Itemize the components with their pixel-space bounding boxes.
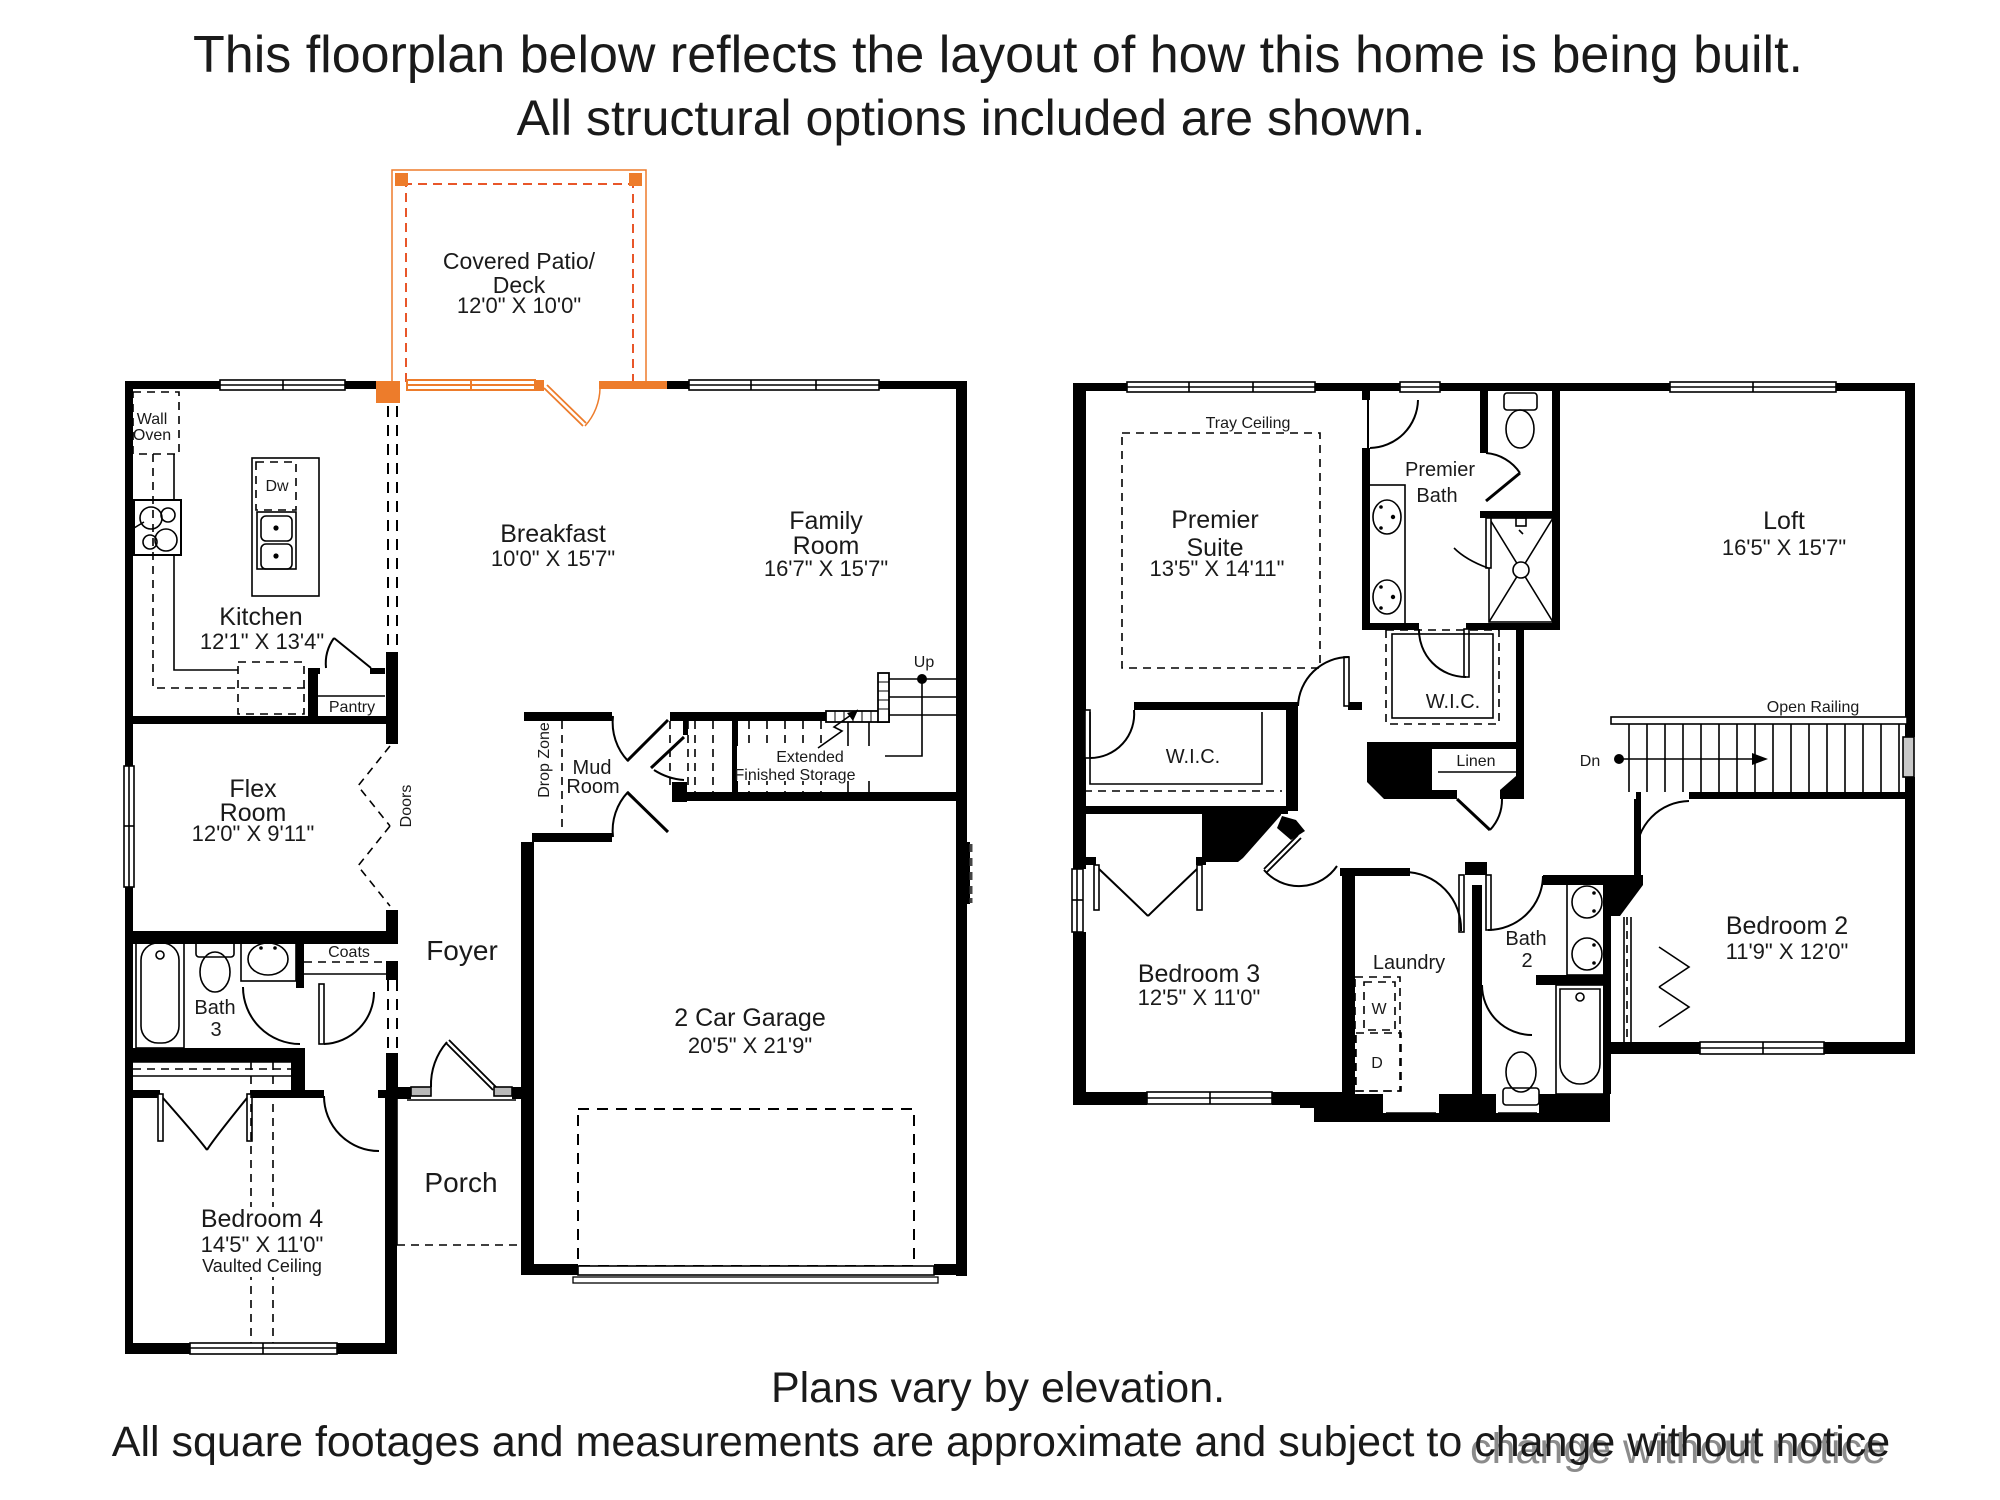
svg-text:16'7" X 15'7": 16'7" X 15'7" [764,556,888,581]
svg-text:11'9" X 12'0": 11'9" X 12'0" [1726,939,1849,964]
svg-text:Plans vary by elevation.: Plans vary by elevation. [771,1364,1225,1412]
svg-text:W.I.C.: W.I.C. [1426,691,1480,713]
svg-text:Foyer: Foyer [426,935,498,966]
svg-text:Family: Family [789,507,863,535]
svg-text:Bath: Bath [1416,485,1457,507]
svg-text:20'5" X 21'9": 20'5" X 21'9" [688,1033,812,1058]
svg-text:Breakfast: Breakfast [500,520,606,548]
svg-text:2 Car Garage: 2 Car Garage [674,1004,825,1032]
svg-text:14'5" X 11'0": 14'5" X 11'0" [201,1232,324,1257]
svg-text:W.I.C.: W.I.C. [1166,746,1220,768]
svg-text:Oven: Oven [133,427,171,444]
svg-text:Coats: Coats [328,944,370,961]
svg-text:12'0" X 10'0": 12'0" X 10'0" [457,293,581,318]
svg-text:Bedroom 2: Bedroom 2 [1726,912,1848,940]
svg-text:Drop Zone: Drop Zone [536,722,553,798]
svg-text:Vaulted Ceiling: Vaulted Ceiling [202,1256,322,1276]
svg-text:Bath: Bath [1505,928,1546,950]
svg-text:Up: Up [914,654,935,671]
svg-text:Linen: Linen [1456,753,1495,770]
svg-text:12'1" X 13'4": 12'1" X 13'4" [200,629,324,654]
svg-text:Finished Storage: Finished Storage [735,767,856,784]
svg-text:Room: Room [566,776,619,798]
svg-text:Bath: Bath [194,997,235,1019]
svg-text:2: 2 [1521,950,1532,972]
svg-text:12'5" X 11'0": 12'5" X 11'0" [1138,985,1261,1010]
svg-text:Wall: Wall [137,411,168,428]
svg-text:Bedroom 4: Bedroom 4 [201,1205,323,1233]
svg-text:Doors: Doors [398,785,415,828]
svg-text:12'0" X 9'11": 12'0" X 9'11" [192,821,315,846]
svg-text:Porch: Porch [424,1167,497,1198]
svg-text:10'0" X 15'7": 10'0" X 15'7" [491,546,615,571]
svg-text:Laundry: Laundry [1373,952,1445,974]
svg-text:Loft: Loft [1763,507,1805,535]
svg-text:W: W [1371,1001,1387,1018]
svg-text:Tray Ceiling: Tray Ceiling [1206,415,1291,432]
svg-text:16'5" X 15'7": 16'5" X 15'7" [1722,535,1846,560]
svg-text:Dw: Dw [265,478,289,495]
svg-text:D: D [1371,1055,1383,1072]
svg-text:Covered Patio/: Covered Patio/ [443,248,596,274]
svg-text:Bedroom 3: Bedroom 3 [1138,960,1260,988]
svg-text:change without notice: change without notice [1470,1425,1886,1473]
svg-text:This floorplan below reflects: This floorplan below reflects the layout… [193,26,1803,84]
svg-text:Premier: Premier [1171,506,1259,534]
svg-text:Kitchen: Kitchen [219,603,302,631]
svg-text:Dn: Dn [1580,753,1600,770]
svg-text:All structural options include: All structural options included are show… [517,90,1426,146]
svg-text:Open Railing: Open Railing [1767,699,1860,716]
svg-text:3: 3 [210,1019,221,1041]
svg-text:Extended: Extended [776,749,844,766]
svg-text:13'5" X 14'11": 13'5" X 14'11" [1150,556,1285,581]
svg-text:Pantry: Pantry [329,699,375,716]
svg-text:Premier: Premier [1405,459,1475,481]
